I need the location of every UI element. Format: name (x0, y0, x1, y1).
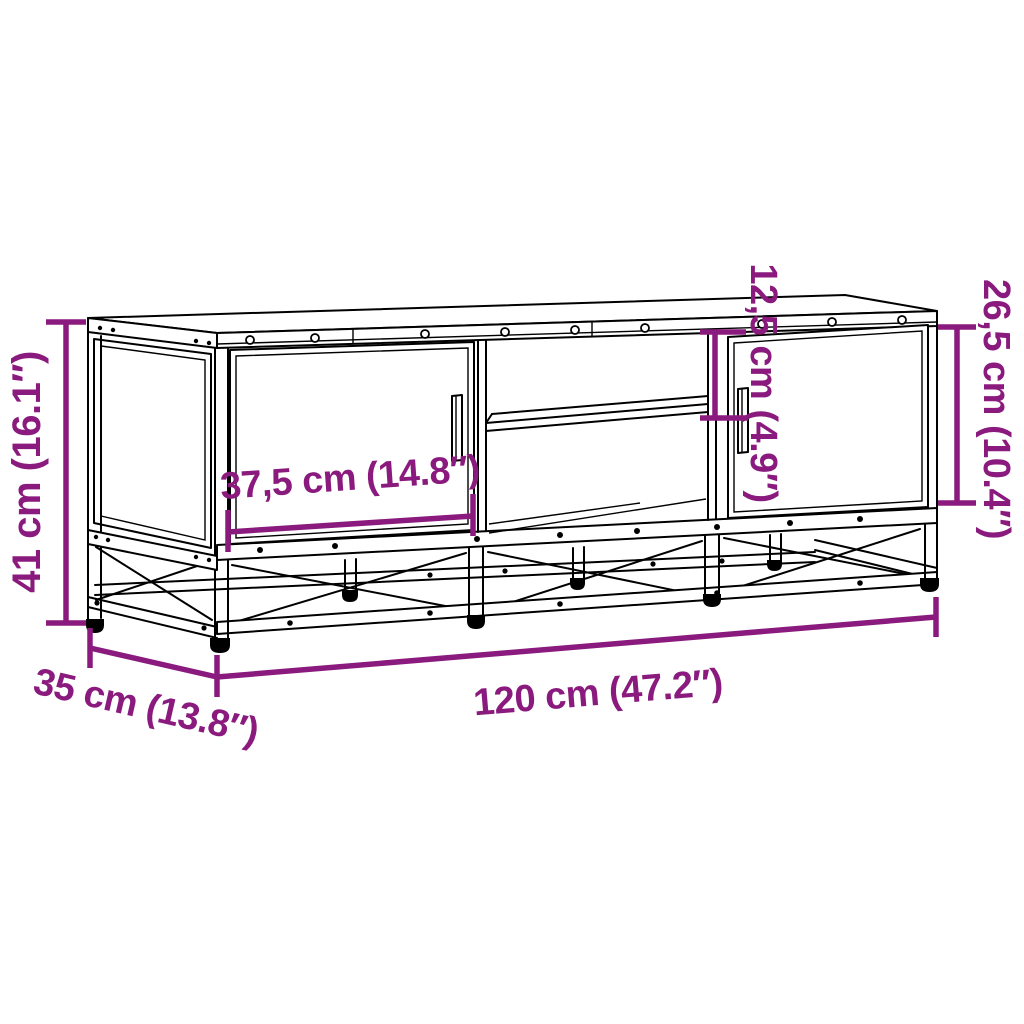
height-label: 41 cm (16.1″) (5, 351, 49, 593)
dimension-door-height: 26,5 cm (10.4″) (938, 279, 1017, 539)
left-side-panel (88, 339, 217, 570)
dimension-height: 41 cm (16.1″) (5, 322, 86, 623)
compartment-height-label: 12,5 cm (4.9″) (742, 263, 784, 502)
tv-stand-dimension-diagram: 41 cm (16.1″) 35 cm (13.8″) 120 cm (47.2… (0, 0, 1024, 1024)
left-door (230, 342, 474, 544)
door-height-label: 26,5 cm (10.4″) (975, 279, 1017, 539)
cabinet-drawing (86, 295, 939, 653)
middle-compartment (478, 333, 716, 533)
dimension-diagram-page: 41 cm (16.1″) 35 cm (13.8″) 120 cm (47.2… (0, 0, 1024, 1024)
middle-shelf (486, 396, 708, 431)
width-label: 120 cm (47.2″) (472, 662, 725, 725)
